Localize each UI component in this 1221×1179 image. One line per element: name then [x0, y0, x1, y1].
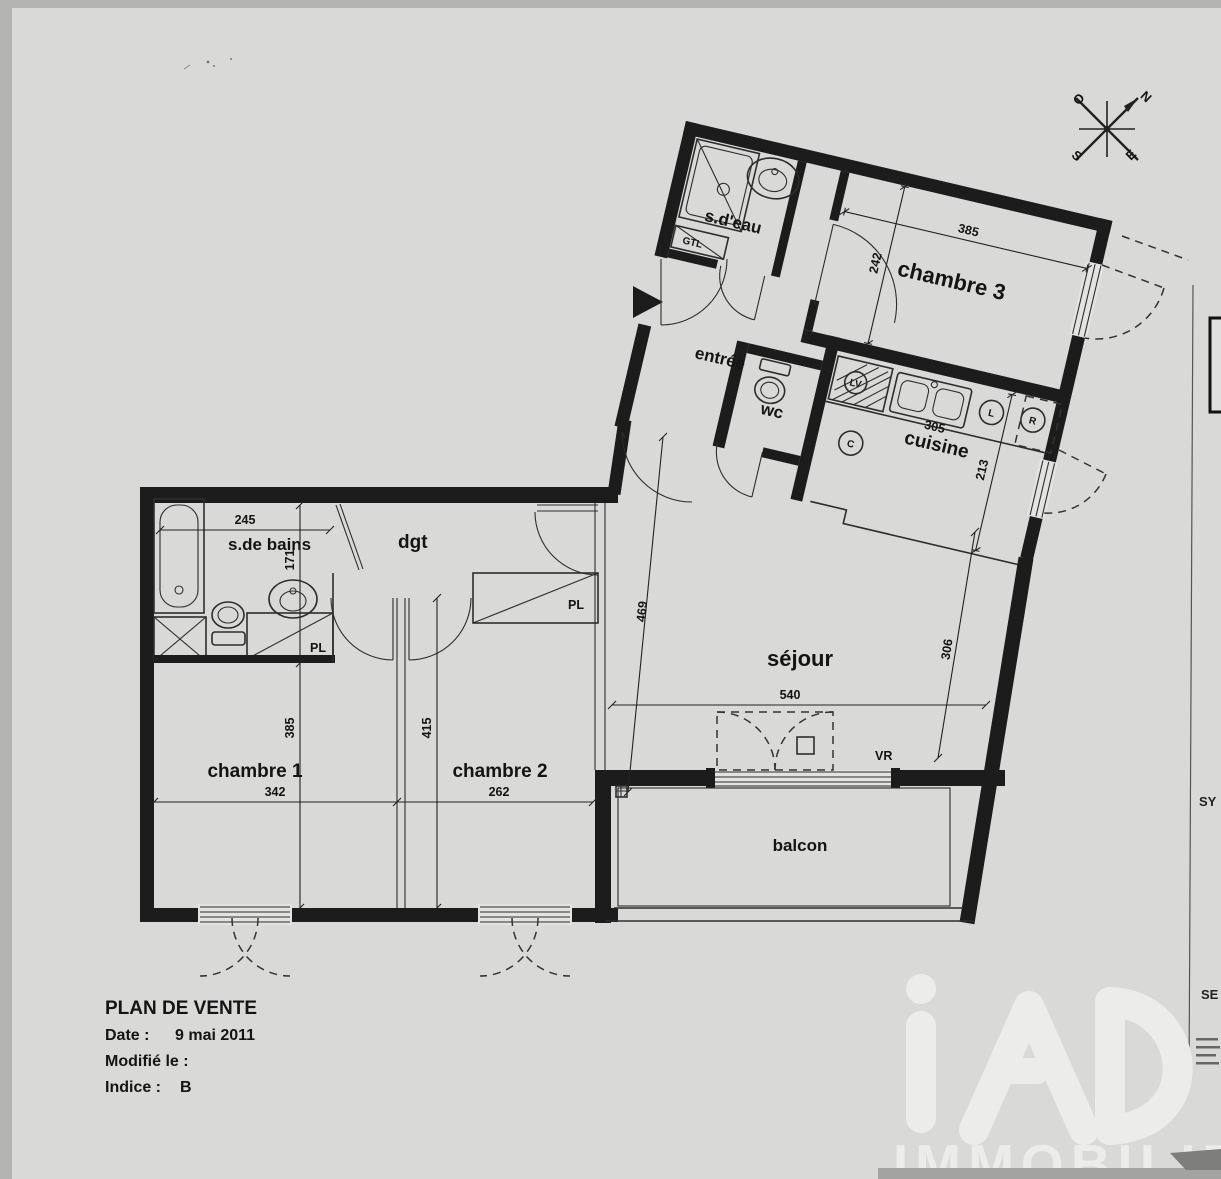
date-value: 9 mai 2011	[175, 1027, 255, 1044]
modified-label: Modifié le :	[105, 1053, 189, 1070]
chambre2-label: chambre 2	[452, 761, 547, 782]
balcon-label: balcon	[773, 836, 828, 855]
side-label-se: SE	[1201, 987, 1219, 1002]
indice-value: B	[180, 1079, 192, 1096]
side-label-sy: SY	[1199, 794, 1217, 809]
dim-ch2-height: 415	[420, 718, 434, 739]
sejour-label: séjour	[767, 646, 833, 671]
date-label: Date :	[105, 1027, 149, 1044]
dim-sejour-width: 540	[780, 688, 801, 702]
indice-label: Indice :	[105, 1079, 161, 1096]
dim-ch2-width: 262	[489, 785, 510, 799]
dim-sejour-length: 469	[634, 600, 650, 622]
floor-plan-svg: GTL s.d'eau 385 242 chambre 3 wc	[0, 0, 1221, 1179]
dim-ch1-height: 385	[283, 718, 297, 739]
dim-ch1-width: 342	[265, 785, 286, 799]
chambre1-label: chambre 1	[207, 761, 302, 782]
scan-bottom-bar	[878, 1168, 1221, 1179]
dim-sdb-width: 245	[235, 513, 256, 527]
pl-sdb-label: PL	[310, 641, 326, 655]
vr-label: VR	[875, 749, 892, 763]
sdb-label: s.de bains	[228, 535, 311, 554]
dim-sdb-depth: 171	[283, 550, 297, 571]
plan-title: PLAN DE VENTE	[105, 998, 257, 1019]
pl-dgt-label: PL	[568, 598, 584, 612]
scanned-floor-plan-page: GTL s.d'eau 385 242 chambre 3 wc	[0, 0, 1221, 1179]
dgt-label: dgt	[398, 532, 428, 553]
